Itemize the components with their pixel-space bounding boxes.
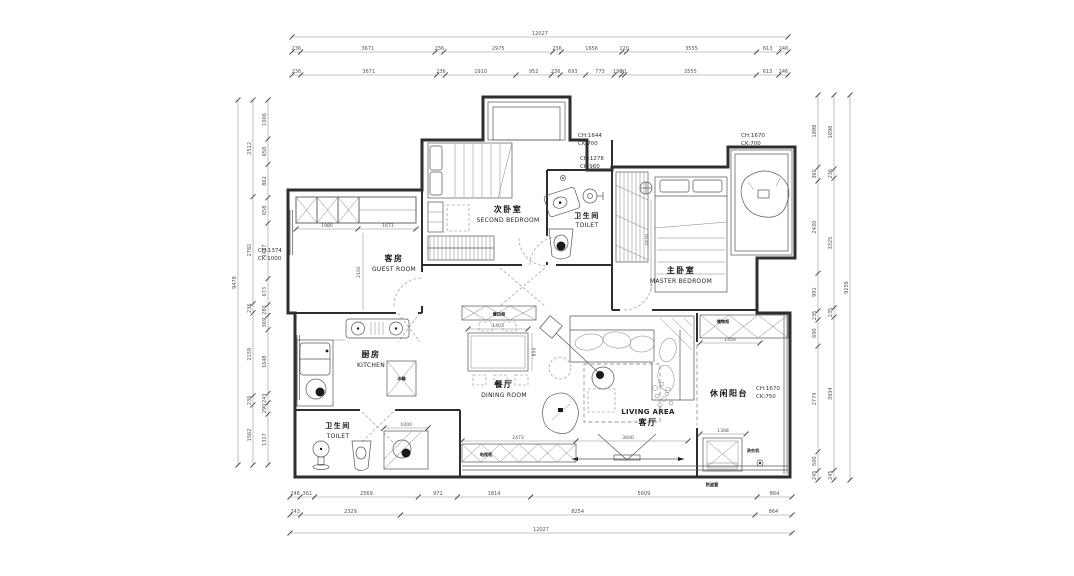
dim-value-bottom_row2-2: 8254	[571, 509, 584, 515]
sofa	[570, 316, 694, 400]
dim-value-top_row2-8: 613	[763, 46, 773, 52]
dining-table-height-dim: 850	[532, 348, 538, 357]
right-window-note-2: CK:750	[756, 394, 776, 400]
dim-value-top_row2-5: 1656	[585, 46, 598, 52]
top-right-window-note-1: CH:1670	[741, 133, 765, 139]
dim-value-top_row3-6: 693	[568, 69, 578, 75]
top-window1-note-2: CK:700	[578, 141, 598, 147]
dim-value-top_row2-4: 236	[552, 46, 562, 52]
dim-value-right_inner-4: 235	[812, 311, 818, 321]
storage-cabinet-label: 储物柜	[716, 318, 730, 325]
balcony-storage-cabinet: 储物柜 1450	[698, 315, 789, 346]
dim-value-left_inner-0: 1006	[262, 113, 268, 126]
dim-value-top_row2-1: 3671	[361, 46, 374, 52]
dim-value-left_inner-10: 290	[262, 404, 268, 414]
dim-value-top_row3-12: 246	[779, 69, 789, 75]
dim-value-top_row3-3: 1910	[474, 69, 487, 75]
tv-cabinet: 电视柜	[462, 444, 576, 462]
balcony-cabinet-dim: 1450	[724, 337, 736, 343]
toilet-upper-bowl	[549, 229, 573, 259]
stove	[346, 319, 409, 338]
left-window-note-1: CH:1374	[258, 248, 282, 254]
dim-value-bottom_row1-3: 971	[433, 491, 443, 497]
wardrobe-second-bedroom	[428, 236, 494, 260]
guest-closet-right-dim: 1671	[382, 223, 394, 229]
floor-lamp	[540, 316, 614, 389]
security-window-note: 防盗窗	[706, 481, 719, 488]
dim-value-left_inner-5: 673	[262, 287, 268, 297]
dim-value-left_mid-3: 2159	[247, 348, 253, 361]
toilet-lower-bowl	[352, 441, 371, 471]
tv-cabinet-dim: 2473	[512, 435, 524, 441]
dim-value-right_mid-5: 245	[828, 470, 834, 480]
dim-value-top_row3-10: 3555	[684, 69, 697, 75]
dim-value-left_inner-1: 658	[262, 147, 268, 157]
coffee-table	[588, 389, 615, 412]
dim-value-right_inner-3: 991	[812, 287, 818, 297]
dim-value-right_inner-6: 2774	[812, 393, 818, 406]
top-window1-note-1: CH:1644	[578, 133, 602, 139]
dim-value-left_mid-5: 1562	[247, 429, 253, 442]
guest-room-label-zh: 客房	[384, 253, 404, 263]
shower: 1000	[382, 422, 431, 469]
dim-row-left_inner: 1006658862658143767328036916482432901317	[262, 98, 271, 468]
dim-value-left_inner-11: 1317	[262, 433, 268, 446]
dining-room-label-en: DINING ROOM	[481, 392, 527, 399]
floor-plan-canvas: 1202723636712362975236165612035556132462…	[0, 0, 1074, 576]
dim-value-top_row3-0: 236	[292, 69, 302, 75]
guest-depth-dim: 2192	[356, 266, 362, 278]
living-south-dims: 2473 3600	[460, 435, 691, 444]
window-south-band	[462, 466, 788, 470]
dim-value-left_inner-9: 243	[262, 393, 268, 403]
wardrobe-master	[616, 172, 648, 262]
walls	[288, 97, 795, 477]
dim-value-bottom_row1-4: 1814	[488, 491, 501, 497]
dim-value-top_row3-11: 613	[763, 69, 773, 75]
guest-room-label-en: GUEST ROOM	[372, 266, 416, 273]
top-right-window-note-2: CK:700	[741, 141, 761, 147]
dim-row-top_row2: 2363671236297523616561203555613246	[290, 46, 791, 55]
dim-value-bottom_row1-2: 2569	[360, 491, 373, 497]
lounge-chair	[543, 393, 579, 434]
nightstand-lamp-icon	[640, 182, 652, 194]
bed-second-bedroom	[428, 143, 512, 198]
kitchen-label-zh: 厨房	[362, 349, 381, 359]
dim-value-top_row3-1: 3671	[362, 69, 375, 75]
dim-row-right_outer: 9258	[844, 93, 853, 483]
dim-value-left_inner-8: 1648	[262, 355, 268, 368]
dim-value-right_inner-0: 1898	[812, 125, 818, 138]
tv-cabinet-label: 电视柜	[480, 451, 493, 458]
living-area-label-en: LIVING AREA	[621, 408, 675, 416]
pebble-decor	[653, 382, 674, 407]
living-south-dim: 3600	[622, 435, 634, 441]
washer-upper-icon	[583, 189, 603, 203]
dim-value-top_row2-2: 236	[435, 46, 445, 52]
dim-value-left_mid-2: 236	[247, 303, 253, 313]
dim-value-bottom_row2-1: 2329	[344, 509, 357, 515]
dim-value-right_outer-0: 9258	[844, 281, 850, 294]
guest-closet-left-dim: 1980	[321, 223, 333, 229]
toilet-upper-label-zh: 卫生间	[574, 211, 600, 220]
dim-value-left_mid-4: 236	[247, 396, 253, 406]
dim-value-top_row2-0: 236	[292, 46, 302, 52]
floor-drain-upper-icon	[560, 175, 565, 180]
dim-value-right_mid-3: 235	[828, 308, 834, 318]
dim-row-bottom_row1: 248361256997118145609864	[288, 491, 795, 500]
dim-value-right_inner-1: 360	[812, 169, 818, 179]
dim-value-top_row2-7: 3555	[685, 46, 698, 52]
dim-value-left_inner-7: 369	[262, 318, 268, 328]
leisure-balcony-label: 休闲阳台	[709, 388, 748, 398]
right-window-note-1: CH:1670	[756, 386, 780, 392]
dim-row-top_row3: 2363671236191095223669377319090355561324…	[290, 69, 791, 78]
window-shaft-top	[488, 102, 565, 140]
dim-value-left_outer-0: 9478	[232, 276, 238, 289]
washer-balcony: 洗衣机 1308	[698, 428, 761, 471]
dim-row-bottom_row2: 24323298254864	[288, 509, 795, 518]
washer-balcony-label: 洗衣机	[747, 447, 760, 454]
sideboard-label: 餐边柜	[492, 311, 506, 318]
dim-value-top_row3-7: 773	[595, 69, 605, 75]
fridge-label: 冰箱	[397, 375, 406, 382]
room-labels: 次卧室 SECOND BEDROOM 卫生间 TOILET 主卧室 MASTER…	[325, 204, 748, 440]
dim-row-right_inner: 189836024309912356902774500245	[812, 93, 821, 483]
dim-value-bottom_row1-1: 361	[303, 491, 313, 497]
dining-chairs	[473, 322, 528, 385]
dim-value-right_mid-1: 236	[828, 169, 834, 179]
dim-value-top_total-0: 12027	[532, 31, 548, 37]
washer-dim: 1308	[717, 428, 729, 434]
dim-row-top_total: 12027	[290, 31, 791, 40]
dim-value-right_inner-2: 2430	[812, 221, 818, 234]
dim-value-top_row3-4: 952	[529, 69, 539, 75]
toilet-lower-label-en: TOILET	[326, 433, 350, 440]
shower-dim: 1000	[400, 422, 412, 428]
dim-value-bottom_row2-3: 864	[769, 509, 779, 515]
master-left-dim: 2430	[645, 234, 651, 246]
master-bedroom-label-zh: 主卧室	[667, 265, 696, 275]
dim-value-top_row2-9: 246	[779, 46, 789, 52]
dim-value-left_inner-2: 862	[262, 176, 268, 186]
dim-value-top_row2-3: 2975	[492, 46, 505, 52]
dim-value-top_row3-5: 236	[551, 69, 561, 75]
dim-row-bottom_total: 12027	[288, 527, 795, 536]
dim-row-right_mid: 189823633252353934245	[828, 93, 837, 483]
dim-value-right_mid-2: 3325	[828, 237, 834, 250]
window-left-kitchen	[297, 335, 300, 400]
dim-value-right_inner-5: 690	[812, 328, 818, 338]
living-area-label-zh: 客厅	[638, 417, 658, 427]
window-balcony-right	[784, 316, 787, 474]
closet-guest-room	[296, 197, 416, 223]
dining-room-label-zh: 餐厅	[494, 379, 514, 389]
dim-value-left_mid-0: 2512	[247, 142, 253, 155]
dim-value-top_row3-2: 236	[436, 69, 446, 75]
kitchen-label-en: KITCHEN	[357, 362, 385, 369]
top-window2-note-1: CH:1278	[580, 156, 604, 162]
left-window-note-2: CK:1000	[258, 256, 282, 262]
dim-value-bottom_row1-5: 5609	[638, 491, 651, 497]
second-bedroom-label-en: SECOND BEDROOM	[476, 217, 539, 224]
top-window2-note-2: CK:960	[580, 164, 600, 170]
dining-table-width-dim: 1403	[492, 323, 504, 329]
toilet-upper-label-en: TOILET	[575, 222, 599, 229]
dim-value-right_mid-0: 1898	[828, 126, 834, 139]
dim-value-left_mid-1: 2782	[247, 244, 253, 257]
cabinet-second-bedroom	[428, 202, 469, 232]
dim-value-bottom_total-0: 12027	[533, 527, 549, 533]
floor-drain-balcony-icon	[757, 460, 763, 466]
dim-value-bottom_row1-0: 248	[290, 491, 300, 497]
dim-value-right_inner-7: 500	[812, 456, 818, 466]
sideboard-cabinet: 餐边柜	[462, 306, 536, 320]
toilet-lower-sink	[313, 441, 329, 470]
dim-value-bottom_row2-0: 243	[290, 509, 300, 515]
fridge: 冰箱	[387, 361, 416, 396]
armchair-bay	[741, 171, 789, 217]
dim-row-left_mid: 2512278223621592361562	[247, 98, 256, 468]
kitchen-sink	[300, 343, 330, 399]
dim-value-right_mid-4: 3934	[828, 387, 834, 400]
dim-row-left_outer: 9478	[232, 98, 241, 468]
dim-value-left_inner-3: 658	[262, 206, 268, 216]
window-left-guest	[290, 210, 293, 255]
window-bay-top-right	[731, 150, 792, 255]
dim-value-left_inner-6: 280	[262, 305, 268, 315]
dim-value-right_inner-8: 245	[812, 471, 818, 481]
dim-value-bottom_row1-6: 864	[770, 491, 780, 497]
master-bedroom-label-en: MASTER BEDROOM	[650, 278, 712, 285]
floor-plan-drawing: 1202723636712362975236165612035556132462…	[0, 0, 1074, 576]
round-rug	[549, 357, 571, 379]
toilet-lower-label-zh: 卫生间	[325, 421, 351, 430]
dining-table: 1403 850	[466, 323, 538, 371]
second-bedroom-label-zh: 次卧室	[494, 204, 523, 214]
